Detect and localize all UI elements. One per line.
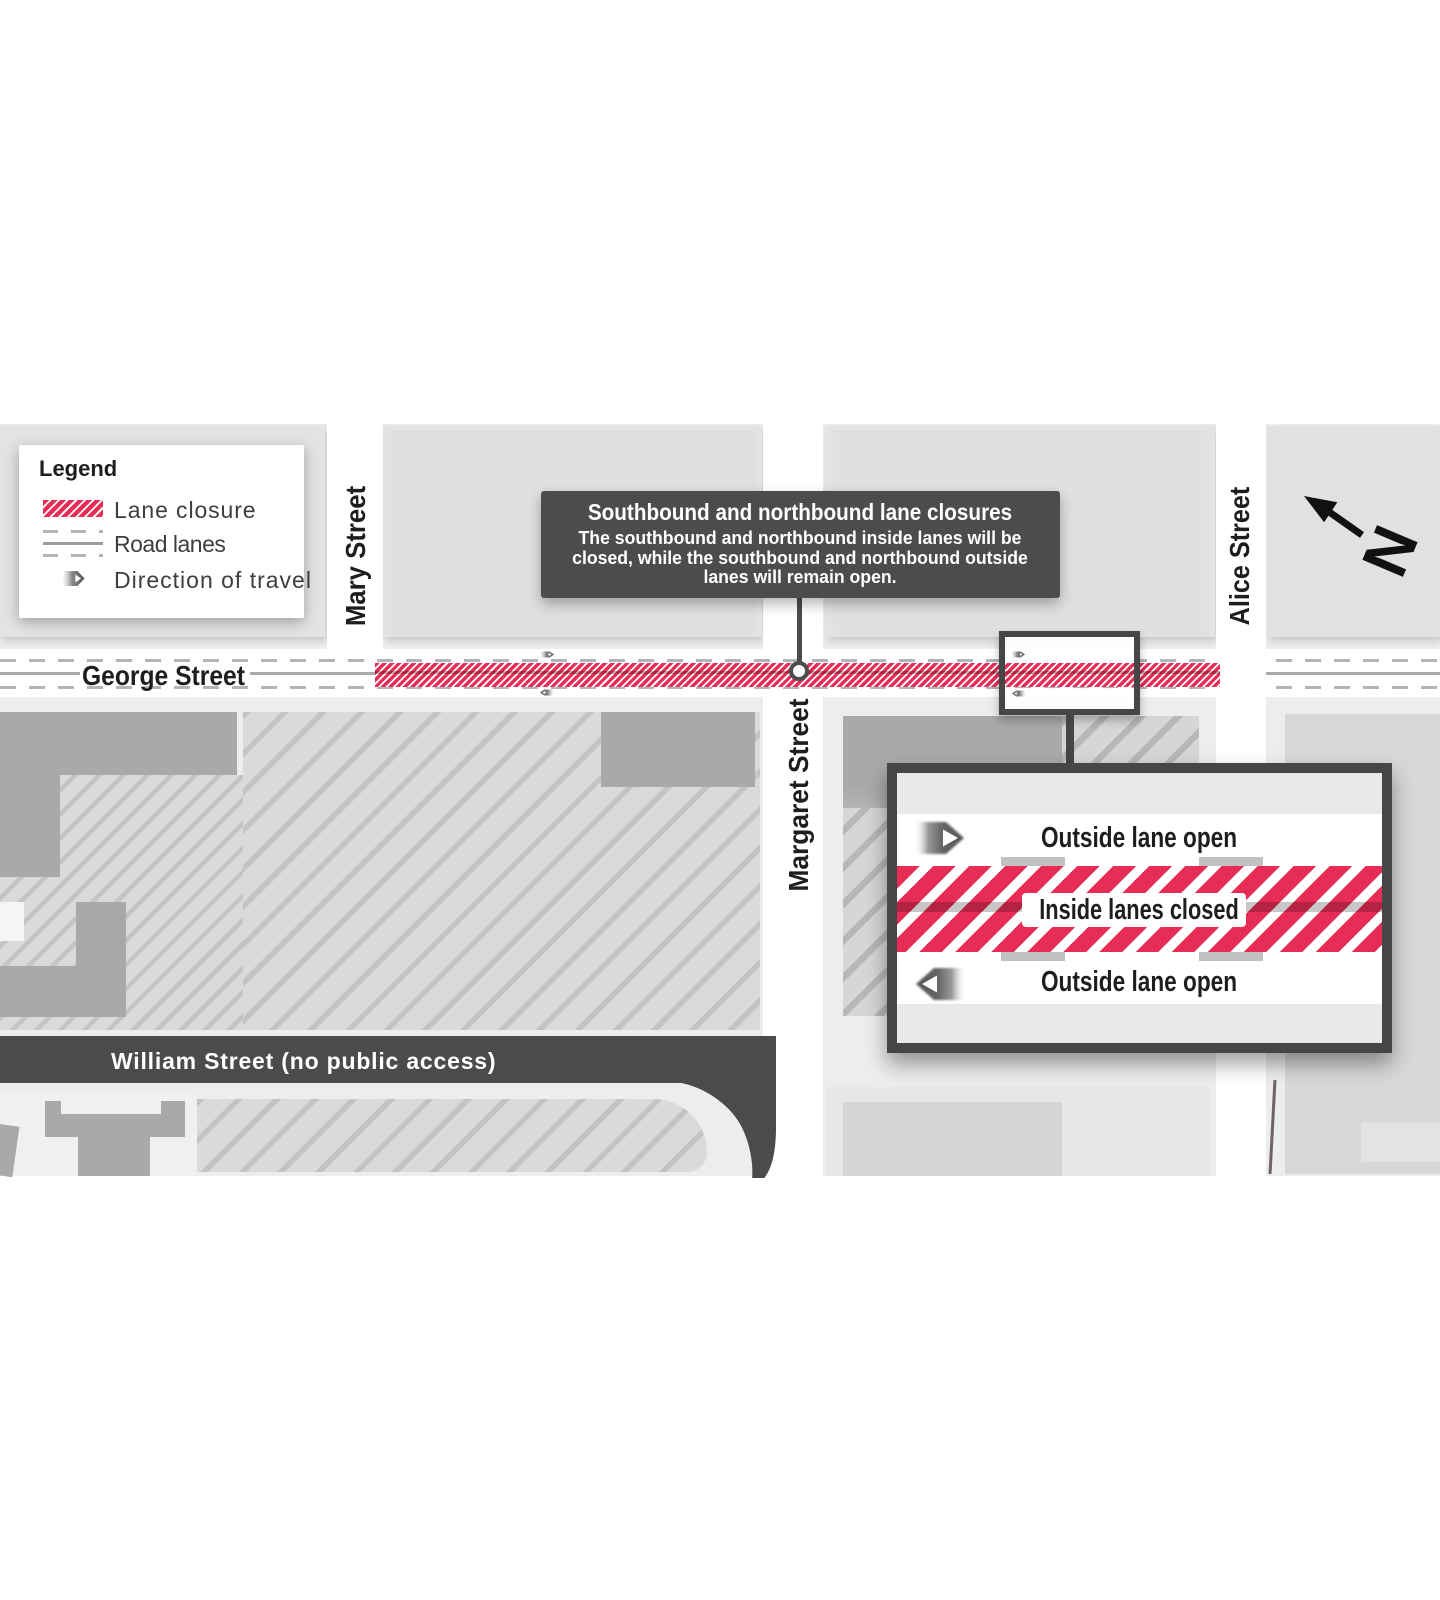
svg-text:N: N bbox=[1348, 516, 1425, 587]
